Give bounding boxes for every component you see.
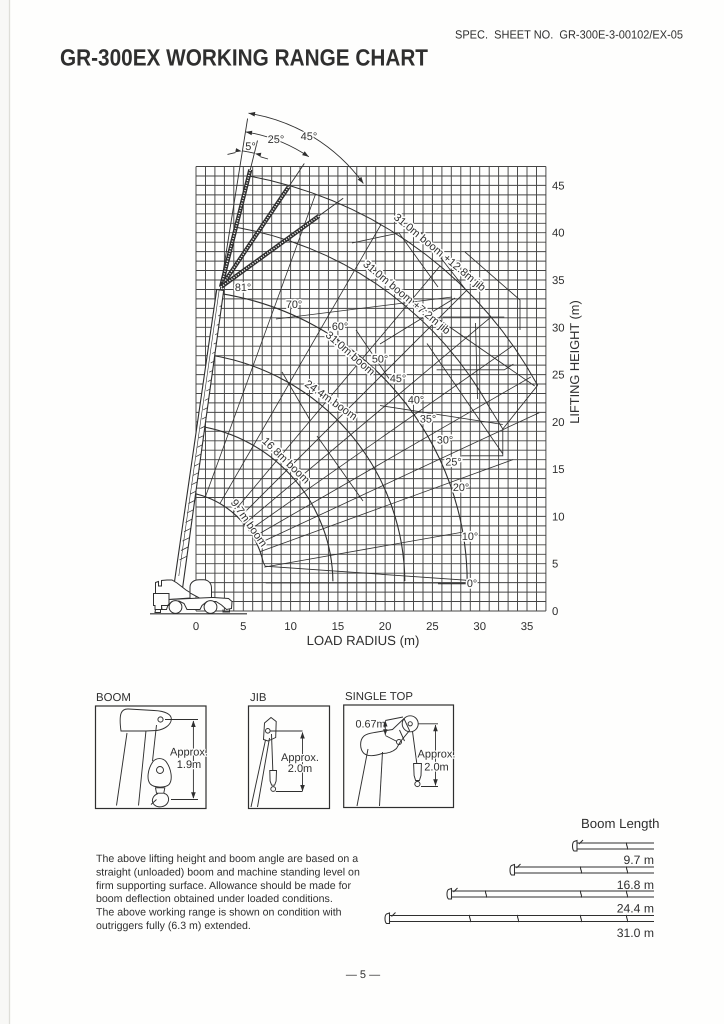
svg-text:GR-300EX WORKING RANGE CHART: GR-300EX WORKING RANGE CHART	[60, 45, 429, 71]
svg-text:LOAD RADIUS (m): LOAD RADIUS (m)	[307, 633, 420, 648]
svg-text:15: 15	[552, 464, 565, 476]
svg-text:The above lifting height and b: The above lifting height and boom angle …	[96, 853, 358, 865]
svg-text:0: 0	[193, 621, 199, 633]
svg-text:45°: 45°	[301, 131, 318, 143]
svg-text:50°: 50°	[372, 354, 388, 366]
svg-text:1.9m: 1.9m	[177, 759, 201, 771]
svg-text:35: 35	[552, 275, 565, 287]
svg-text:5°: 5°	[245, 141, 256, 153]
svg-text:JIB: JIB	[250, 692, 266, 704]
svg-text:20: 20	[552, 417, 565, 429]
svg-text:70°: 70°	[286, 299, 302, 311]
svg-text:Approx.: Approx.	[170, 747, 208, 759]
svg-text:9.7 m: 9.7 m	[624, 853, 654, 867]
svg-text:LIFTING HEIGHT (m): LIFTING HEIGHT (m)	[567, 300, 582, 423]
svg-text:45: 45	[552, 180, 565, 192]
svg-text:25: 25	[426, 621, 439, 633]
svg-text:The above working range is sho: The above working range is shown on cond…	[96, 907, 342, 919]
svg-text:20: 20	[379, 621, 392, 633]
svg-text:firm supporting surface. Allow: firm supporting surface. Allowance shoul…	[96, 880, 351, 892]
svg-text:2.0m: 2.0m	[288, 763, 312, 775]
svg-text:SPEC. SHEET NO. GR-300E-3-00: SPEC. SHEET NO. GR-300E-3-00102/EX-05	[455, 28, 683, 42]
svg-text:24.4 m: 24.4 m	[617, 902, 654, 916]
svg-text:45°: 45°	[390, 373, 406, 385]
svg-text:35: 35	[521, 621, 534, 633]
svg-text:40°: 40°	[408, 395, 424, 407]
svg-text:40: 40	[552, 228, 565, 240]
svg-text:2.0m: 2.0m	[424, 762, 448, 774]
svg-text:5: 5	[240, 621, 246, 633]
svg-text:Boom Length: Boom Length	[581, 816, 659, 831]
svg-text:31.0m boom +12.8m jib: 31.0m boom +12.8m jib	[391, 211, 488, 294]
svg-text:0°: 0°	[467, 578, 477, 590]
svg-text:boom deflection obtained under: boom deflection obtained under loaded co…	[96, 893, 333, 905]
svg-text:BOOM: BOOM	[96, 692, 131, 704]
svg-text:24.4m boom: 24.4m boom	[302, 378, 359, 423]
svg-text:30: 30	[552, 322, 565, 334]
svg-text:31.0 m: 31.0 m	[617, 926, 654, 940]
svg-text:— 5 —: — 5 —	[346, 969, 380, 981]
svg-text:25°: 25°	[445, 457, 461, 469]
svg-text:straight (unloaded) boom and m: straight (unloaded) boom and machine sta…	[96, 866, 360, 878]
svg-text:16.8 m: 16.8 m	[617, 878, 654, 892]
svg-text:5: 5	[552, 559, 558, 571]
svg-text:Approx.: Approx.	[418, 749, 456, 761]
svg-text:0.67m: 0.67m	[356, 719, 386, 731]
svg-text:10°: 10°	[462, 531, 478, 543]
svg-text:30°: 30°	[437, 435, 453, 447]
svg-text:35°: 35°	[420, 414, 436, 426]
svg-text:20°: 20°	[453, 482, 469, 494]
svg-text:10: 10	[284, 621, 297, 633]
svg-text:SINGLE TOP: SINGLE TOP	[345, 691, 413, 703]
svg-text:30: 30	[473, 621, 486, 633]
svg-text:25°: 25°	[268, 134, 285, 146]
svg-text:25: 25	[552, 370, 565, 382]
svg-text:10: 10	[552, 511, 565, 523]
svg-text:15: 15	[332, 621, 345, 633]
svg-text:81°: 81°	[235, 282, 251, 294]
svg-text:outriggers fully (6.3 m) exten: outriggers fully (6.3 m) extended.	[96, 920, 251, 932]
svg-text:0: 0	[552, 606, 558, 618]
